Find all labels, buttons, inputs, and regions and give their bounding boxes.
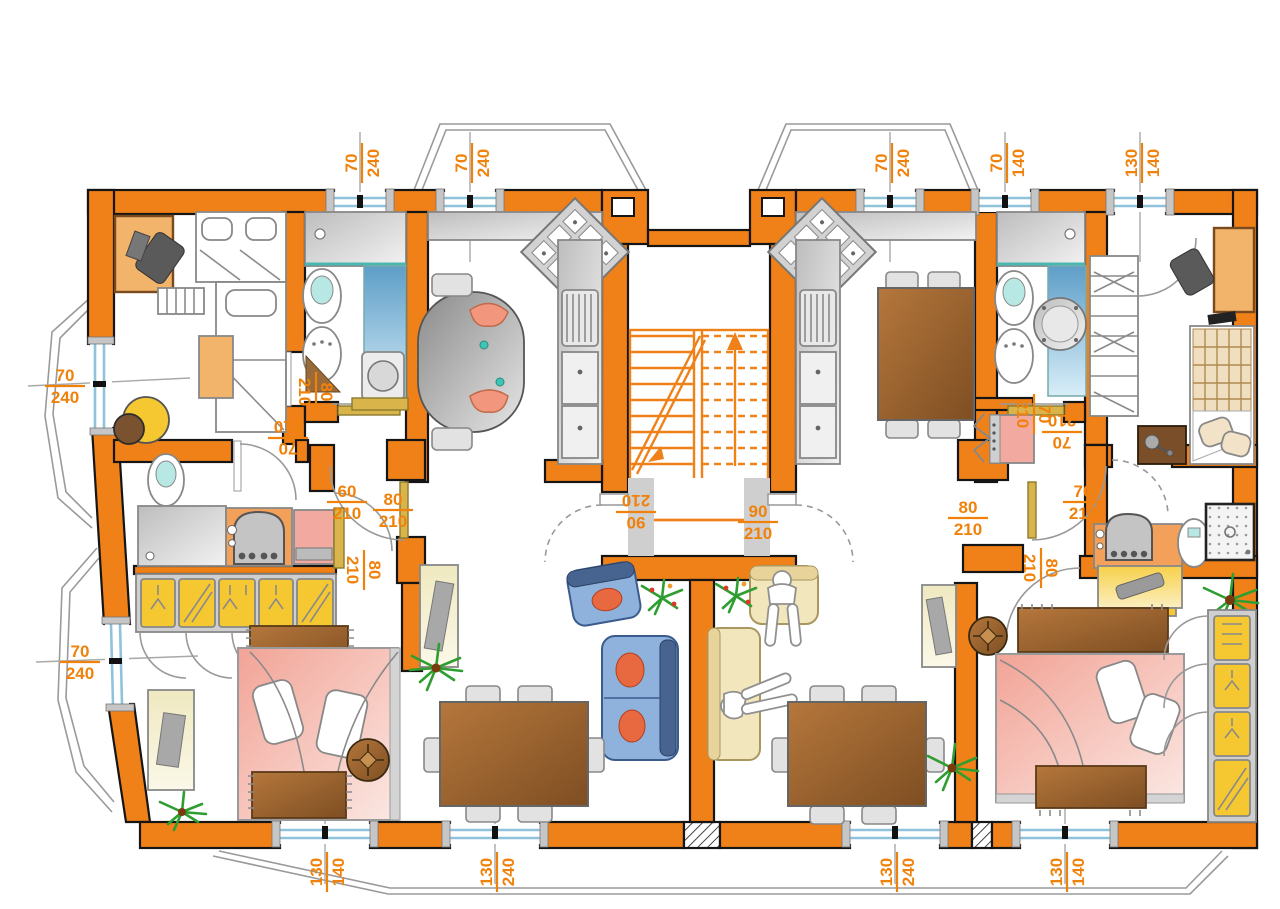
entry-door-left[interactable] <box>545 494 628 562</box>
svg-text:210: 210 <box>295 378 314 406</box>
dimension-label-top-window-1: 70240 <box>342 143 383 183</box>
dining-table-left <box>424 686 604 822</box>
svg-text:130: 130 <box>1122 149 1141 177</box>
window-130x140-top <box>1106 189 1174 215</box>
nightstand-right <box>1138 426 1186 464</box>
right-bathroom-top <box>995 212 1086 396</box>
svg-text:70: 70 <box>71 642 90 661</box>
dimension-label-left-window-2: 70240 <box>60 642 100 683</box>
svg-text:70: 70 <box>279 439 298 458</box>
stool <box>114 414 144 444</box>
armchair-cream <box>750 566 818 646</box>
dimension-label-left-window-1: 70240 <box>45 366 85 407</box>
svg-text:80: 80 <box>959 498 978 517</box>
svg-text:210: 210 <box>622 491 650 510</box>
svg-text:240: 240 <box>499 858 518 886</box>
left-bathroom-top <box>303 212 406 406</box>
bench-bottom <box>248 772 352 818</box>
dimension-label-bottom-window-2: 130240 <box>477 852 518 892</box>
svg-text:130: 130 <box>307 858 326 886</box>
svg-text:80: 80 <box>1042 559 1061 578</box>
dimension-label-top-window-3: 70240 <box>872 143 913 183</box>
svg-text:210: 210 <box>954 520 982 539</box>
dimension-label-left-bedroom2-door: 80210 <box>343 550 384 590</box>
svg-text:130: 130 <box>877 858 896 886</box>
svg-text:140: 140 <box>329 858 348 886</box>
svg-text:240: 240 <box>364 149 383 177</box>
svg-text:210: 210 <box>343 556 362 584</box>
svg-text:140: 140 <box>1144 149 1163 177</box>
shelf <box>352 398 408 410</box>
person-seated-b <box>470 390 508 412</box>
dimension-label-bottom-window-1: 130140 <box>307 852 348 892</box>
door-right-bath2[interactable] <box>1112 460 1168 516</box>
right-bedroom-top <box>1090 228 1254 464</box>
nightstand <box>199 336 233 398</box>
svg-text:210: 210 <box>744 524 772 543</box>
dimension-label-top-window-4: 70140 <box>987 143 1028 183</box>
floor-plan-page: 7024070240702407014013014070240702401301… <box>0 0 1280 909</box>
dimension-label-top-window-5: 130140 <box>1122 143 1163 183</box>
svg-text:210: 210 <box>274 417 302 436</box>
svg-text:130: 130 <box>477 858 496 886</box>
window-left-upper <box>88 337 116 435</box>
balcony-top-right <box>758 124 978 190</box>
round-side-table <box>347 739 389 781</box>
svg-text:210: 210 <box>333 504 361 523</box>
svg-text:60: 60 <box>338 482 357 501</box>
right-living-room <box>708 566 978 824</box>
svg-text:70: 70 <box>1074 482 1093 501</box>
ladder <box>158 288 204 314</box>
round-stool <box>969 617 1007 655</box>
balcony-top-left <box>414 124 646 190</box>
single-bed-right <box>1190 326 1254 464</box>
svg-text:70: 70 <box>1053 433 1072 452</box>
structural-pillar <box>972 822 992 848</box>
svg-text:240: 240 <box>899 858 918 886</box>
armchair-blue <box>566 561 643 628</box>
structural-pillar <box>684 822 720 848</box>
stair-treads-solid <box>630 336 694 464</box>
bidet-right <box>995 329 1033 383</box>
svg-text:210: 210 <box>1020 554 1039 582</box>
svg-text:240: 240 <box>474 149 493 177</box>
svg-text:210: 210 <box>379 512 407 531</box>
window-130x240-br <box>842 821 948 847</box>
svg-text:80: 80 <box>317 383 336 402</box>
svg-text:70: 70 <box>452 154 471 173</box>
plant-colorful <box>642 580 682 614</box>
svg-text:130: 130 <box>1047 858 1066 886</box>
dining-table-right <box>772 686 944 824</box>
dimension-label-bottom-window-4: 130140 <box>1047 852 1088 892</box>
right-bedroom-bottom <box>969 604 1256 822</box>
sofa-blue <box>602 636 678 760</box>
entry-door-right[interactable] <box>768 494 853 562</box>
dimension-label-right-bedroom2-door: 80210 <box>1020 548 1061 588</box>
tall-cabinet-right <box>922 585 956 667</box>
window-left-lower <box>102 617 134 711</box>
svg-text:90: 90 <box>749 502 768 521</box>
svg-text:70: 70 <box>987 154 1006 173</box>
bench-top-right <box>1018 604 1168 652</box>
svg-text:70: 70 <box>872 154 891 173</box>
shower-br <box>1206 504 1254 560</box>
kitchen-table <box>418 274 524 450</box>
window-130x140-bl <box>272 821 378 847</box>
bench-bottom-right <box>1036 766 1146 816</box>
kitchen-table-right <box>878 272 974 438</box>
svg-text:80: 80 <box>365 561 384 580</box>
svg-text:210: 210 <box>1048 411 1076 430</box>
svg-text:140: 140 <box>1009 149 1028 177</box>
floor-plan-canvas: 7024070240702407014013014070240702401301… <box>0 0 1280 909</box>
dresser <box>148 690 194 790</box>
window-130x140-br <box>1012 821 1118 847</box>
svg-text:140: 140 <box>1069 858 1088 886</box>
svg-text:80: 80 <box>384 490 403 509</box>
svg-text:90: 90 <box>627 513 646 532</box>
dimension-label-bottom-window-3: 130240 <box>877 852 918 892</box>
dimension-label-right-hall-door: 80210 <box>948 498 988 539</box>
svg-text:70: 70 <box>56 366 75 385</box>
right-bathroom2 <box>1094 504 1254 568</box>
right-kitchen <box>768 198 976 464</box>
dimension-label-right-bedroom-door: 70210 <box>1042 411 1082 452</box>
left-bedroom-top <box>114 212 286 444</box>
window-130x240-bl <box>442 821 548 847</box>
svg-text:240: 240 <box>66 664 94 683</box>
svg-text:210: 210 <box>1069 504 1097 523</box>
svg-text:210: 210 <box>1013 400 1032 428</box>
desk-right <box>1214 228 1254 312</box>
left-living-room <box>410 561 682 822</box>
desk-chair-right <box>1168 247 1216 298</box>
svg-text:70: 70 <box>342 154 361 173</box>
dimension-label-top-window-2: 70240 <box>452 143 493 183</box>
svg-text:240: 240 <box>894 149 913 177</box>
svg-text:240: 240 <box>51 388 79 407</box>
